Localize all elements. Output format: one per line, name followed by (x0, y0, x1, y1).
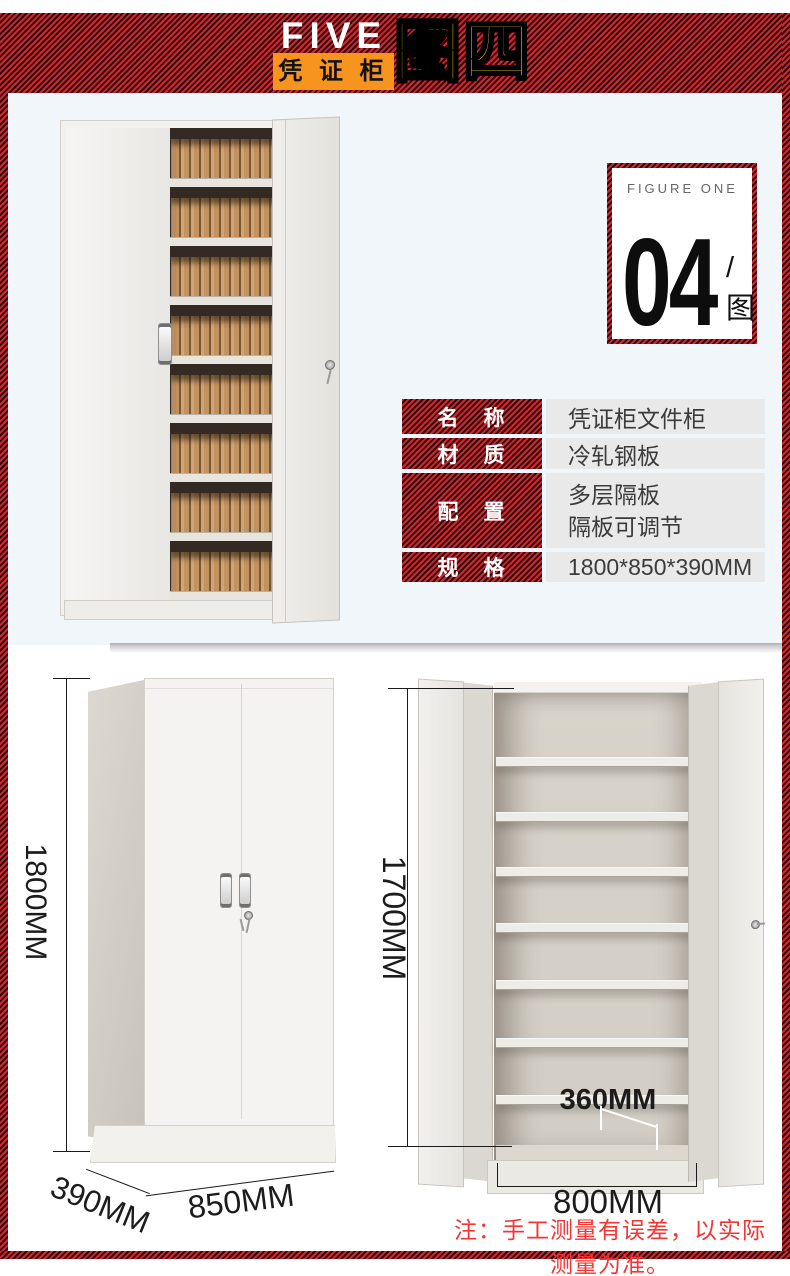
dimension-tick (53, 678, 90, 679)
cabinet-top-edge (494, 682, 702, 693)
figure-badge-inner: FIGURE ONE 04 /图 (612, 168, 752, 339)
shelf-row (170, 364, 276, 423)
door-top-edge (145, 688, 333, 689)
shelf-row (170, 541, 276, 600)
photo-cabinet-with-boxes (58, 112, 358, 624)
shelf-row (170, 128, 276, 187)
shelf-edge (170, 473, 276, 482)
open-left-door (418, 679, 464, 1188)
cabinet-side-panel (88, 680, 144, 1148)
voucher-boxes (171, 493, 275, 533)
dimension-tick (600, 1106, 602, 1130)
dimension-tick (656, 1124, 658, 1150)
keys-icon (326, 370, 331, 384)
spec-label-size: 规 格 (402, 552, 542, 582)
voucher-boxes (171, 198, 275, 238)
left-border-strip (0, 13, 8, 1259)
measurement-note: 注：手工测量有误差，以实际测量为准。 (445, 1211, 775, 1276)
voucher-boxes (171, 434, 275, 474)
spec-value-size: 1800*850*390MM (546, 552, 765, 582)
spec-value-config: 多层隔板 隔板可调节 (546, 473, 765, 548)
shelf (496, 867, 700, 877)
spec-value-name: 凭证柜文件柜 (546, 399, 765, 434)
spec-value-text: 多层隔板 (568, 479, 765, 511)
open-door-fold (462, 682, 493, 1182)
cabinet-plinth (90, 1125, 336, 1163)
photo-closed-cabinet (60, 670, 340, 1170)
shelf (496, 812, 700, 822)
brand-logo: FIVE (274, 16, 394, 54)
spec-value-text: 凭证柜文件柜 (568, 400, 765, 434)
shelf (496, 980, 700, 990)
voucher-boxes (171, 139, 275, 179)
cabinet-plinth (64, 600, 284, 620)
dimension-tick (53, 1151, 90, 1152)
shelf (496, 1038, 700, 1048)
keys-icon (757, 923, 765, 925)
right-border-strip (782, 13, 790, 1259)
shelf-edge (170, 414, 276, 423)
figure-badge: FIGURE ONE 04 /图 (607, 163, 757, 344)
lock-icon (325, 360, 335, 370)
figure-badge-label: FIGURE ONE (627, 181, 738, 196)
spec-value-text: 冷轧钢板 (568, 437, 765, 471)
open-right-door (718, 679, 764, 1188)
brand-subtitle: 凭 证 柜 (273, 53, 394, 90)
spec-value-material: 冷轧钢板 (546, 438, 765, 469)
cabinet-interior (170, 128, 276, 606)
product-detail-image: FIVE 凭 证 柜 图四 FIGURE ONE 04 / (0, 0, 790, 1276)
shelf-edge (170, 178, 276, 187)
spec-label-material: 材 质 (402, 438, 542, 469)
dimension-line-height-1800 (66, 678, 67, 1152)
dimension-label-height-closed: 1800MM (18, 832, 52, 972)
door-crease (285, 120, 286, 622)
closed-left-door (66, 128, 171, 608)
shelf-row (170, 305, 276, 364)
dimension-label-height-open: 1700MM (377, 848, 411, 988)
voucher-boxes (171, 552, 275, 592)
shelf-edge (170, 532, 276, 541)
figure-title: 图四 (394, 14, 544, 94)
dimension-tick (388, 1146, 512, 1147)
voucher-boxes (171, 257, 275, 297)
voucher-boxes (171, 316, 275, 356)
spec-value-text: 1800*850*390MM (568, 554, 765, 581)
dimension-label-width: 850MM (169, 1176, 312, 1227)
door-handle (239, 873, 251, 908)
shelf-row (170, 187, 276, 246)
shelf-edge (170, 296, 276, 305)
open-right-door (272, 117, 340, 624)
shelf-edge (170, 591, 276, 600)
door-handle (220, 873, 232, 908)
figure-badge-suffix: /图 (726, 252, 755, 327)
dimension-tick (497, 1163, 498, 1187)
door-handle (158, 323, 172, 365)
section-bottom-shadow (110, 643, 782, 653)
dimension-tick (696, 1163, 697, 1187)
dimension-tick (388, 688, 514, 689)
shelf-row (170, 482, 276, 541)
shelf-edge (170, 237, 276, 246)
shelf (496, 923, 700, 933)
spec-label-config: 配 置 (402, 473, 542, 548)
dimension-label-depth: 390MM (29, 1163, 172, 1247)
shelf (496, 757, 700, 767)
spec-label-name: 名 称 (402, 399, 542, 434)
spec-value-text: 隔板可调节 (568, 511, 765, 543)
voucher-boxes (171, 375, 275, 415)
shelf-row (170, 423, 276, 482)
shelf-row (170, 246, 276, 305)
cabinet-floor (496, 1145, 700, 1160)
shelf-edge (170, 355, 276, 364)
figure-badge-number: 04 (622, 233, 716, 335)
open-door-fold (688, 682, 719, 1182)
